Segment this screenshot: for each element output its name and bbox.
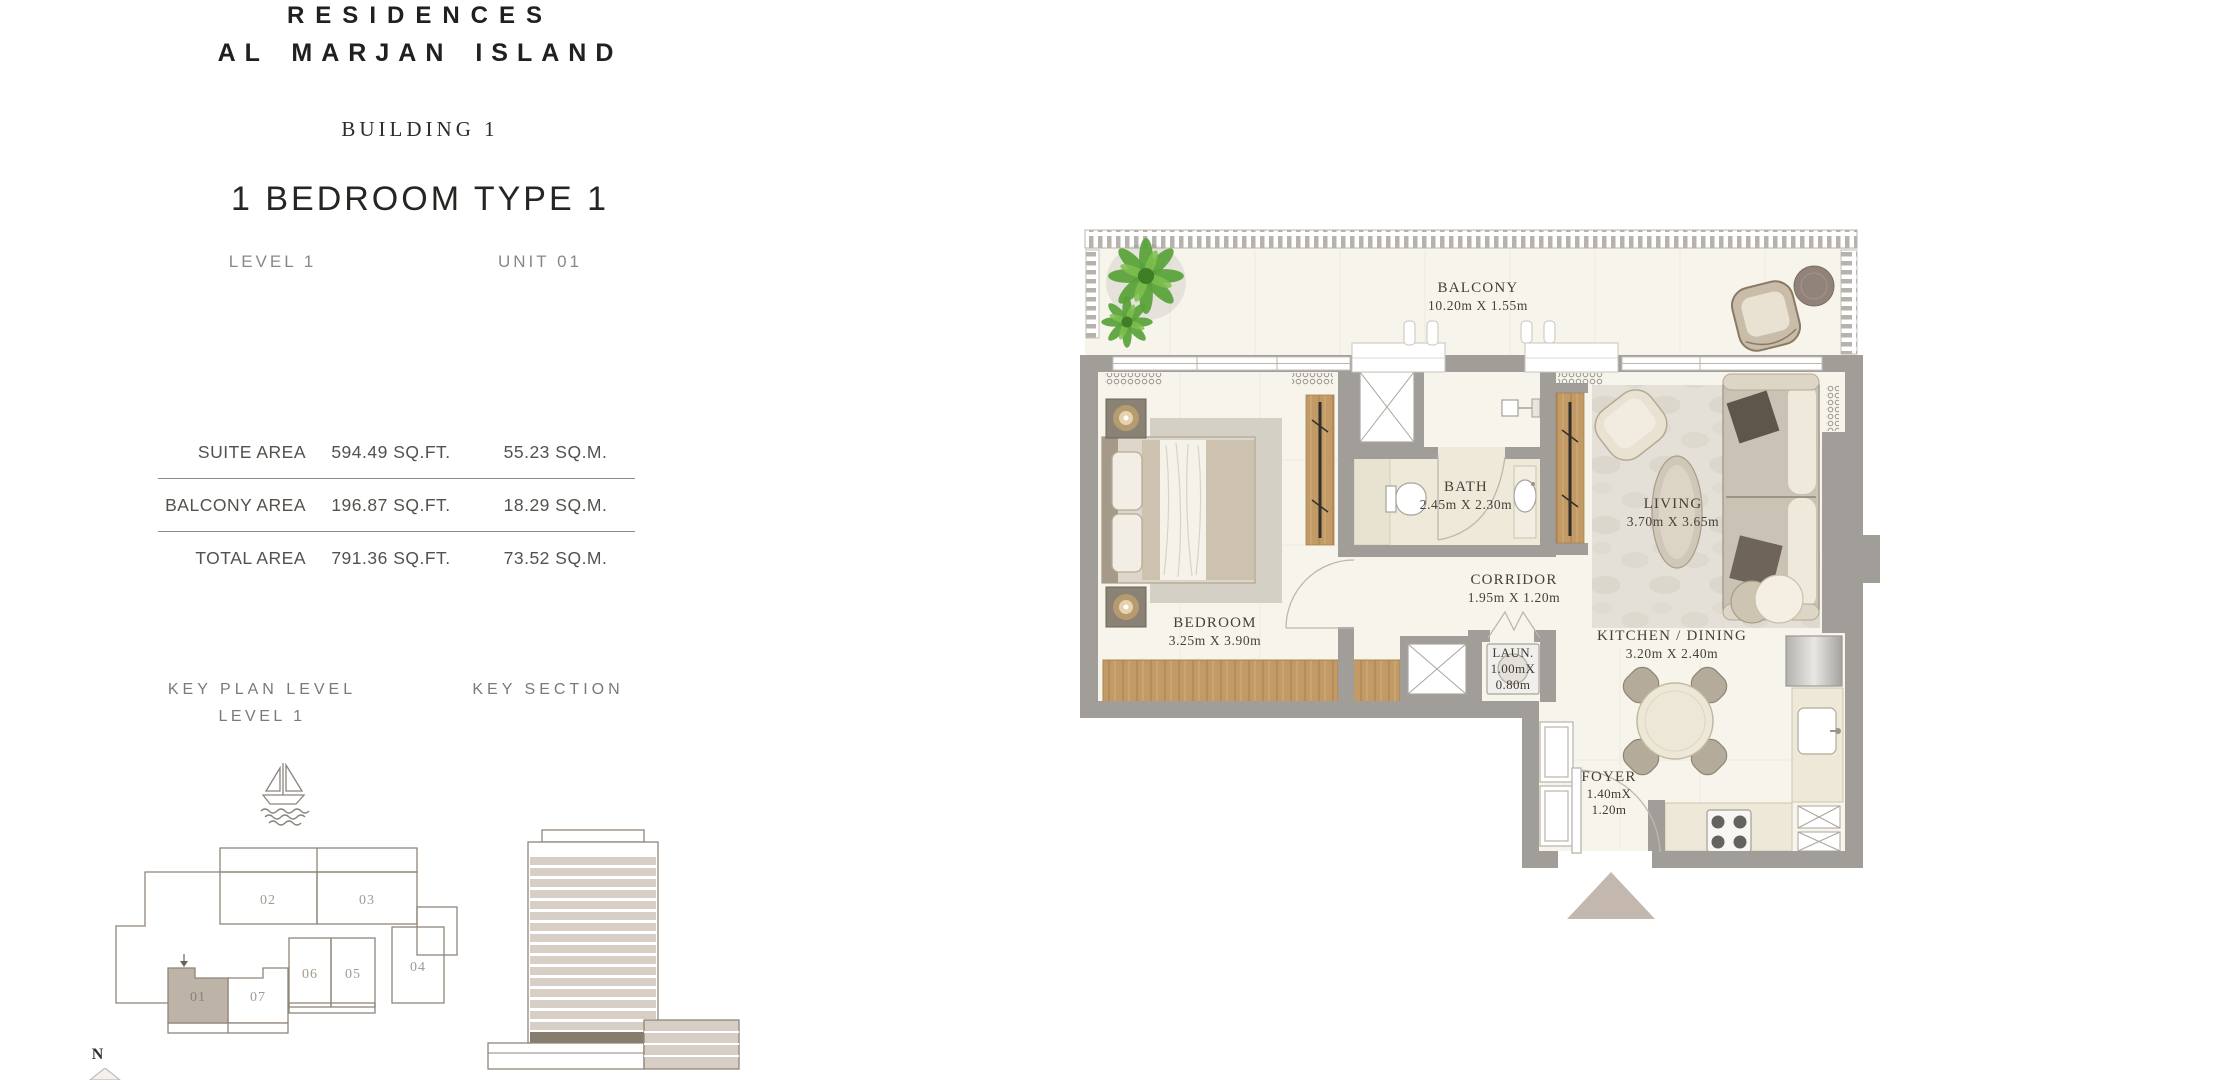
area-row-sqm: 18.29 SQ.M. [476,495,635,516]
bath-vanity-sink [1514,466,1536,538]
kitchen-sink [1798,708,1841,754]
living-closet [1556,393,1584,543]
area-row-label: SUITE AREA [158,442,306,463]
fridge [1786,636,1842,686]
room-label-bath: BATH [1444,479,1488,495]
balcony-railing-right [1841,250,1857,354]
key-plan-subtitle: LEVEL 1 [112,708,412,726]
room-dims-bedroom: 3.25m X 3.90m [1169,633,1262,648]
key-plan-unit-01: 01 [190,990,206,1005]
key-plan-title-block: KEY PLAN LEVEL LEVEL 1 [112,681,412,726]
room-label-corridor: CORRIDOR [1470,572,1557,588]
room-label-bedroom: BEDROOM [1173,615,1256,631]
table-row: SUITE AREA 594.49 SQ.FT. 55.23 SQ.M. [158,426,635,479]
north-arrow-icon [88,1068,122,1080]
shaft-corridor [1408,644,1466,694]
area-row-sqft: 594.49 SQ.FT. [306,442,476,463]
section-highlighted-level [530,1032,656,1043]
stove [1707,810,1751,852]
unit-label: UNIT 01 [455,252,625,272]
room-dims-foyer-1: 1.40mX [1587,786,1632,801]
area-row-sqm: 73.52 SQ.M. [476,548,635,569]
brand-line-1: RESIDENCES [110,0,730,30]
room-dims-bath: 2.45m X 2.30m [1420,497,1513,512]
room-label-kitchen: KITCHEN / DINING [1597,628,1747,644]
section-annex [644,1020,739,1069]
service-shafts-kitchen [1798,806,1840,851]
key-plan-unit-01-highlight [168,954,228,1023]
brand-block: RESIDENCES AL MARJAN ISLAND [110,0,730,68]
shaft-bath [1360,372,1414,442]
level-label: LEVEL 1 [190,252,355,272]
room-label-living: LIVING [1644,496,1703,512]
bed [1102,437,1255,583]
sailboat-icon [261,763,309,825]
bedroom-wardrobe [1103,660,1338,703]
room-label-balcony: BALCONY [1438,280,1519,296]
room-dims-foyer-2: 1.20m [1592,802,1627,817]
north-label: N [78,1046,118,1064]
room-dims-living: 3.70m X 3.65m [1627,514,1720,529]
balcony-side-table [1794,266,1834,306]
room-dims-corridor: 1.95m X 1.20m [1468,590,1561,605]
key-plan-unit-06: 06 [302,967,318,982]
key-plan-footprint [116,848,457,1033]
balcony-railing-top [1085,230,1857,248]
room-dims-balcony: 10.20m X 1.55m [1428,298,1528,313]
room-label-laundry: LAUN. [1492,645,1533,660]
area-table: SUITE AREA 594.49 SQ.FT. 55.23 SQ.M. BAL… [158,426,635,584]
page-title: 1 BEDROOM TYPE 1 [110,180,730,219]
room-label-foyer: FOYER [1581,769,1636,785]
key-plan-unit-05: 05 [345,967,361,982]
room-dims-kitchen: 3.20m X 2.40m [1626,646,1719,661]
section-roof [542,830,644,842]
brand-line-2: AL MARJAN ISLAND [110,39,730,68]
key-plan-unit-03: 03 [359,893,375,908]
key-plan-unit-07: 07 [250,990,266,1005]
floor-plan: BALCONY 10.20m X 1.55m BATH 2.45m X 2.30… [1075,222,1885,934]
key-section-title: KEY SECTION [398,681,698,699]
entry-marker [1567,872,1655,919]
room-dims-laundry-2: 0.80m [1496,677,1531,692]
table-row: TOTAL AREA 791.36 SQ.FT. 73.52 SQ.M. [158,532,635,584]
side-table-round-2 [1755,575,1803,623]
area-row-label: BALCONY AREA [158,495,306,516]
room-dims-laundry-1: 1.00mX [1491,661,1536,676]
area-row-sqm: 55.23 SQ.M. [476,442,635,463]
nightstand-top [1106,399,1146,438]
key-plan-title: KEY PLAN LEVEL [112,681,412,699]
section-podium [488,1043,644,1069]
key-plan-unit-02: 02 [260,893,276,908]
building-title: BUILDING 1 [110,117,730,142]
table-row: BALCONY AREA 196.87 SQ.FT. 18.29 SQ.M. [158,479,635,532]
key-plan-diagram: 02 03 06 05 04 01 07 [80,755,480,1045]
area-row-sqft: 196.87 SQ.FT. [306,495,476,516]
key-plan-unit-04: 04 [410,960,426,975]
nightstand-bottom [1106,587,1146,627]
coffee-table-oval [1652,456,1702,568]
key-section-diagram [480,820,750,1080]
bedroom-tall-wardrobe [1306,395,1334,545]
area-row-sqft: 791.36 SQ.FT. [306,548,476,569]
balcony-railing-left [1086,250,1099,338]
area-row-label: TOTAL AREA [158,548,306,569]
floorplan-brochure-page: RESIDENCES AL MARJAN ISLAND BUILDING 1 1… [0,0,2220,1080]
